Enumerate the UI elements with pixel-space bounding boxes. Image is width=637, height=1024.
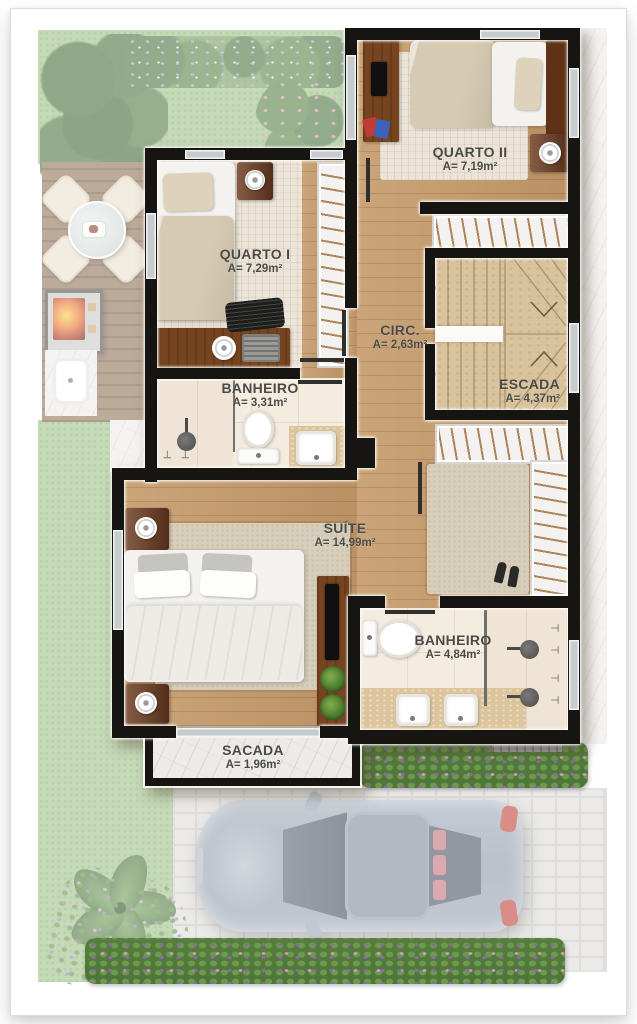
faucet-mark: ⊥ bbox=[181, 452, 190, 460]
headboard bbox=[546, 40, 570, 136]
room-label-quarto-ii: QUARTO II A= 7,19m² bbox=[390, 144, 550, 175]
sink-icon bbox=[396, 694, 430, 726]
pillow bbox=[199, 570, 256, 599]
wall-segment bbox=[345, 158, 357, 308]
shower-head-icon bbox=[177, 432, 196, 451]
floor-plan-page: ⊥ ⊥ bbox=[0, 0, 637, 1024]
wall-segment bbox=[357, 438, 375, 468]
tv-icon bbox=[371, 62, 387, 96]
room-name: ESCADA bbox=[428, 376, 560, 393]
sink-icon bbox=[444, 694, 478, 726]
pillow bbox=[133, 570, 190, 599]
tv-icon bbox=[325, 584, 339, 660]
room-name: SUÍTE bbox=[270, 520, 420, 537]
wall-segment bbox=[425, 248, 435, 328]
faucet-mark: ⊥ bbox=[552, 624, 560, 633]
room-label-circulacao: CIRC. A= 2,63m² bbox=[348, 322, 452, 353]
room-name: BANHEIRO bbox=[180, 380, 340, 397]
sliding-door-icon bbox=[176, 728, 320, 737]
wall-segment bbox=[348, 730, 580, 744]
door-leaf-icon bbox=[418, 462, 422, 514]
pillow bbox=[514, 57, 543, 110]
room-area: A= 3,31m² bbox=[180, 397, 340, 411]
potted-plant-icon bbox=[320, 694, 346, 720]
drain bbox=[410, 716, 415, 721]
drain bbox=[458, 716, 463, 721]
door-leaf-icon bbox=[366, 158, 370, 202]
room-name: SACADA bbox=[178, 742, 328, 759]
faucet-mark: ⊥ bbox=[163, 452, 172, 460]
flush-button bbox=[367, 635, 372, 640]
decor-disc bbox=[212, 336, 236, 360]
room-name: BANHEIRO bbox=[378, 632, 528, 649]
wall-segment bbox=[112, 468, 357, 480]
window-icon bbox=[569, 323, 579, 393]
floor-plan-canvas: ⊥ ⊥ bbox=[30, 28, 607, 990]
room-name: QUARTO I bbox=[175, 246, 335, 263]
room-label-quarto-i: QUARTO I A= 7,29m² bbox=[175, 246, 335, 277]
window-icon bbox=[346, 55, 356, 140]
wall-segment bbox=[420, 202, 580, 214]
wall-segment bbox=[345, 358, 357, 480]
single-bed-duvet bbox=[410, 40, 496, 128]
door-leaf-icon bbox=[342, 310, 346, 356]
office-chair bbox=[225, 297, 286, 333]
wardrobe bbox=[432, 214, 572, 252]
window-icon bbox=[569, 68, 579, 138]
room-label-suite: SUÍTE A= 14,99m² bbox=[270, 520, 420, 551]
door-leaf-icon bbox=[385, 610, 435, 614]
room-area: A= 4,37m² bbox=[428, 393, 560, 407]
decor-disc bbox=[135, 517, 157, 539]
wall-segment bbox=[345, 28, 580, 40]
room-area: A= 14,99m² bbox=[270, 537, 420, 551]
room-name: QUARTO II bbox=[390, 144, 550, 161]
faucet-mark: ⊥ bbox=[552, 674, 560, 683]
room-name: CIRC. bbox=[348, 322, 452, 339]
wardrobe bbox=[435, 424, 572, 464]
room-area: A= 7,29m² bbox=[175, 263, 335, 277]
room-area: A= 1,96m² bbox=[178, 759, 328, 773]
room-label-banheiro-suite: BANHEIRO A= 4,84m² bbox=[378, 632, 528, 663]
decor-disc bbox=[245, 170, 265, 190]
flush-button bbox=[256, 453, 261, 458]
wall-segment bbox=[425, 410, 580, 420]
window-icon bbox=[569, 640, 579, 710]
wall-segment bbox=[348, 596, 360, 742]
window-icon bbox=[113, 530, 123, 630]
decor-disc bbox=[135, 692, 157, 714]
faucet-mark: ⊥ bbox=[552, 696, 560, 705]
pillow bbox=[162, 172, 213, 212]
laptop bbox=[242, 334, 280, 362]
shower-head-icon bbox=[520, 688, 539, 707]
window-icon bbox=[185, 150, 225, 159]
wall-segment bbox=[440, 596, 568, 608]
double-bed-duvet bbox=[126, 606, 302, 680]
wall-segment bbox=[112, 726, 176, 738]
wall-segment bbox=[145, 148, 157, 482]
room-area: A= 7,19m² bbox=[390, 161, 550, 175]
wardrobe bbox=[530, 460, 572, 598]
door-leaf-icon bbox=[300, 358, 344, 362]
room-label-sacada: SACADA A= 1,96m² bbox=[178, 742, 328, 773]
floor-plan: ⊥ ⊥ bbox=[30, 28, 607, 990]
drain bbox=[314, 455, 319, 460]
wall-segment bbox=[425, 248, 580, 258]
room-label-banheiro-social: BANHEIRO A= 3,31m² bbox=[180, 380, 340, 411]
window-icon bbox=[480, 30, 540, 39]
vanity-counter bbox=[360, 688, 526, 730]
faucet-mark: ⊥ bbox=[552, 646, 560, 655]
toilet-icon bbox=[242, 410, 274, 448]
wall-segment bbox=[157, 368, 300, 379]
window-icon bbox=[310, 150, 343, 159]
room-label-escada: ESCADA A= 4,37m² bbox=[428, 376, 560, 407]
room-area: A= 4,84m² bbox=[378, 649, 528, 663]
window-icon bbox=[146, 213, 156, 279]
room-area: A= 2,63m² bbox=[348, 339, 452, 353]
potted-plant-icon bbox=[320, 666, 346, 692]
